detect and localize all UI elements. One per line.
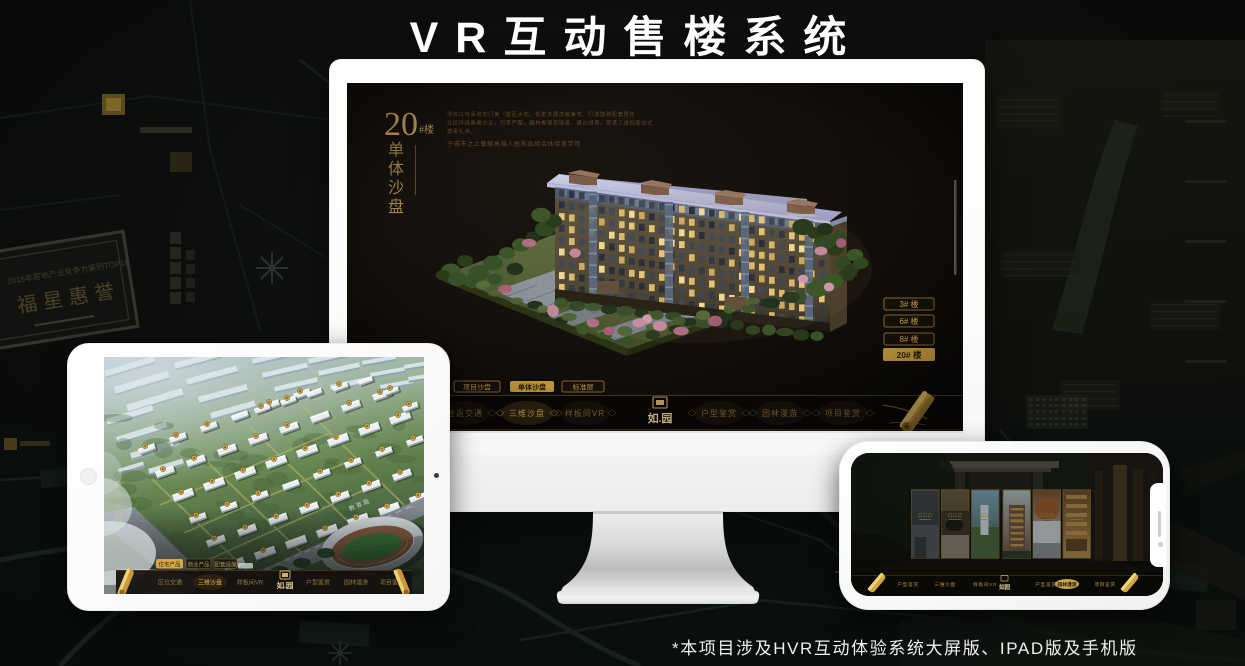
svg-text:园林漫游: 园林漫游 — [344, 579, 368, 587]
svg-text:户型鉴赏: 户型鉴赏 — [1035, 581, 1057, 588]
svg-text:户型鉴赏: 户型鉴赏 — [306, 579, 330, 587]
svg-text:如园: 如园 — [999, 583, 1011, 591]
svg-text:样板间VR: 样板间VR — [973, 581, 997, 588]
svg-text:配套设施: 配套设施 — [214, 561, 237, 569]
svg-text:样板间VR: 样板间VR — [237, 579, 264, 587]
svg-text:商业产品: 商业产品 — [187, 561, 210, 569]
svg-text:期: 期 — [114, 514, 121, 522]
svg-text:三: 三 — [114, 503, 121, 511]
svg-text:三维沙盘: 三维沙盘 — [934, 581, 956, 588]
svg-text:户型鉴赏: 户型鉴赏 — [897, 581, 919, 588]
svg-text:园: 园 — [114, 481, 121, 489]
svg-text:区: 区 — [114, 492, 121, 500]
svg-text:住宅产品: 住宅产品 — [158, 561, 181, 569]
svg-text:如.园: 如.园 — [277, 580, 294, 590]
svg-text:项目鉴赏: 项目鉴赏 — [1094, 581, 1116, 588]
svg-text:园林漫游: 园林漫游 — [1057, 581, 1076, 588]
svg-text:三维沙盘: 三维沙盘 — [198, 579, 222, 587]
svg-text:区位交通: 区位交通 — [158, 579, 182, 587]
